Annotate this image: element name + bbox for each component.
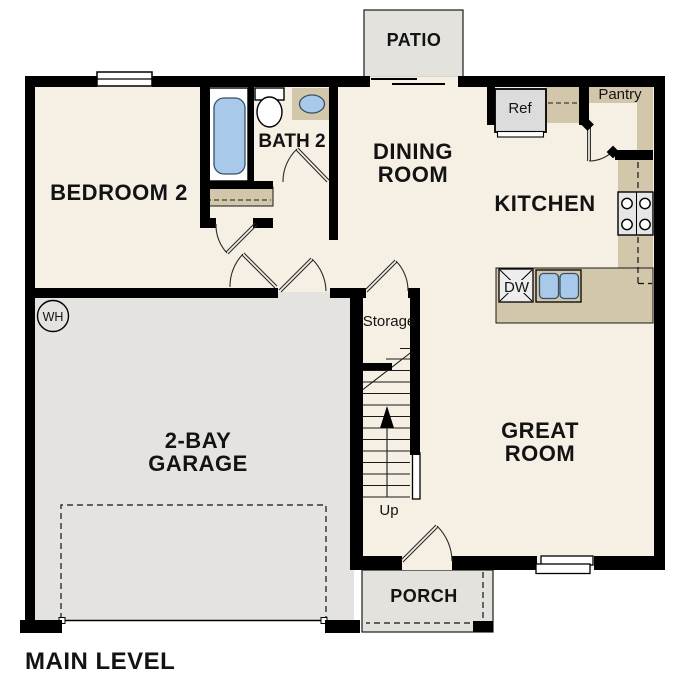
- dining-room-label-line1: DINING: [373, 139, 453, 164]
- up-label: Up: [379, 502, 398, 519]
- ref-label: Ref: [508, 100, 532, 117]
- great-room-label-line2: ROOM: [505, 441, 575, 466]
- bath-sink-icon: [300, 95, 325, 113]
- stair-handrail: [413, 453, 421, 499]
- porch-corner-wall: [473, 621, 493, 632]
- dw-label: DW: [504, 279, 530, 296]
- bedroom2-window: [97, 72, 152, 86]
- floor-plan-page: BEDROOM 2 BATH 2 DINING ROOM KITCHEN GRE…: [0, 0, 687, 687]
- garage-label-line2: GARAGE: [148, 451, 248, 476]
- patio-sliding-door: [370, 77, 458, 87]
- bath2-label: BATH 2: [258, 131, 325, 152]
- stove-icon: [618, 192, 653, 235]
- pantry-shelf-right: [637, 103, 653, 150]
- porch-label: PORCH: [390, 586, 458, 606]
- kitchen-sink-icon: [536, 270, 581, 302]
- pantry-label: Pantry: [598, 86, 642, 103]
- wh-label: WH: [43, 310, 64, 324]
- floor-plan-drawing: BEDROOM 2 BATH 2 DINING ROOM KITCHEN GRE…: [0, 0, 687, 687]
- great-room-window: [536, 556, 593, 574]
- storage-label: Storage: [363, 313, 416, 330]
- bathtub-icon: [214, 98, 245, 174]
- garage-label-line1: 2-BAY: [165, 428, 232, 453]
- dining-room-label-line2: ROOM: [378, 162, 448, 187]
- bedroom2-label: BEDROOM 2: [50, 180, 188, 205]
- kitchen-label: KITCHEN: [494, 191, 595, 216]
- refrigerator-door: [498, 132, 544, 138]
- patio-label: PATIO: [387, 30, 442, 50]
- bedroom2-closet-shelf: [204, 187, 273, 206]
- great-room-label-line1: GREAT: [501, 418, 579, 443]
- plan-title: MAIN LEVEL: [25, 648, 175, 675]
- toilet-bowl-icon: [257, 97, 282, 127]
- kitchen-counter-by-ref: [546, 87, 583, 123]
